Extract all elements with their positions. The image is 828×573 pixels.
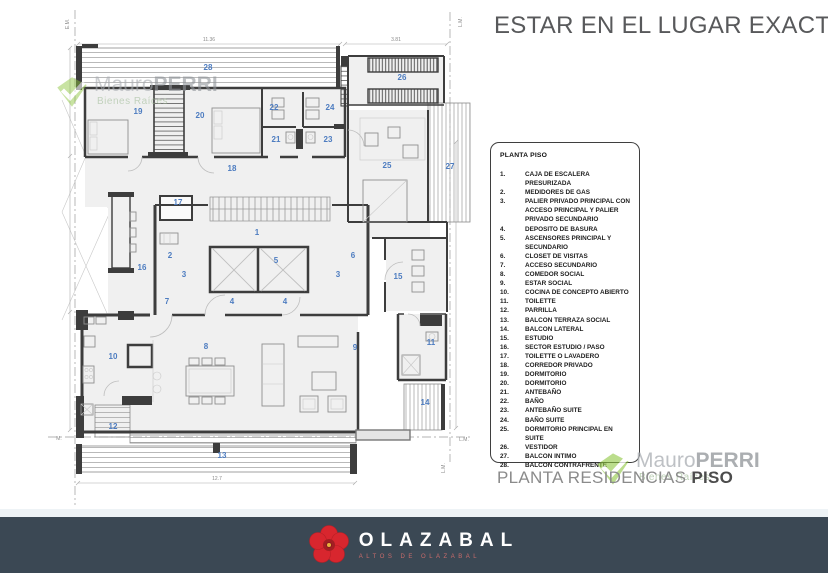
legend-item-number: 23. (500, 406, 525, 415)
legend-item-label: DORMITORIO (525, 379, 633, 388)
room-number-label: 20 (196, 111, 205, 120)
room-number-label: 4 (283, 297, 288, 306)
legend-item-label: MEDIDORES DE GAS (525, 188, 633, 197)
legend-item-label: BALCON LATERAL (525, 325, 633, 334)
closet-band (368, 58, 438, 72)
room-number-label: 25 (383, 161, 392, 170)
legend-item: 1.CAJA DE ESCALERA PRESURIZADA (500, 170, 633, 188)
legend-item-number: 24. (500, 416, 525, 425)
legend-item-label: COCINA DE CONCEPTO ABIERTO (525, 288, 633, 297)
room-number-label: 27 (446, 162, 455, 171)
legend-item: 20.DORMITORIO (500, 379, 633, 388)
boundary-label: E.M. (65, 19, 71, 29)
legend-item-number: 1. (500, 170, 525, 188)
dimension-label: 12.7 (212, 476, 222, 482)
legend-box: PLANTA PISO 1.CAJA DE ESCALERA PRESURIZA… (490, 142, 640, 463)
legend-heading: PLANTA PISO (500, 152, 633, 159)
legend-item: 16.SECTOR ESTUDIO / PASO (500, 343, 633, 352)
legend-item-label: PALIER PRIVADO PRINCIPAL CON ACCESO PRIN… (525, 197, 633, 224)
legend-item-label: PARRILLA (525, 306, 633, 315)
boundary-label: M. (56, 436, 62, 442)
legend-item: 15.ESTUDIO (500, 334, 633, 343)
legend-item-label: ESTAR SOCIAL (525, 279, 633, 288)
legend-item-number: 4. (500, 225, 525, 234)
olazabal-flower-icon (309, 524, 349, 566)
legend-item-number: 14. (500, 325, 525, 334)
legend-item: 22.BAÑO (500, 397, 633, 406)
legend-item-number: 2. (500, 188, 525, 197)
legend-item-label: DORMITORIO PRINCIPAL EN SUITE (525, 425, 633, 443)
legend-item: 19.DORMITORIO (500, 370, 633, 379)
legend-item-number: 25. (500, 425, 525, 443)
room-number-label: 8 (204, 342, 209, 351)
footer-bar: OLAZABAL ALTOS DE OLAZABAL (0, 517, 828, 573)
legend-item-number: 26. (500, 443, 525, 452)
legend-item-label: COMEDOR SOCIAL (525, 270, 633, 279)
legend-item-number: 13. (500, 316, 525, 325)
room-number-label: 2 (168, 251, 173, 260)
staircase-hatch (154, 89, 184, 153)
legend-item-label: VESTIDOR (525, 443, 633, 452)
legend-item-label: ANTEBAÑO (525, 388, 633, 397)
room-number-label: 24 (326, 103, 335, 112)
legend-item: 13.BALCON TERRAZA SOCIAL (500, 316, 633, 325)
legend-item-label: BAÑO (525, 397, 633, 406)
room-number-label: 15 (394, 272, 403, 281)
legend-item-label: ASCENSORES PRINCIPAL Y SECUNDARIO (525, 234, 633, 252)
brand-subtitle: ALTOS DE OLAZABAL (359, 554, 519, 560)
legend-item-number: 6. (500, 252, 525, 261)
legend-item-number: 22. (500, 397, 525, 406)
page-title: ESTAR EN EL LUGAR EXACTO. (494, 12, 824, 40)
room-number-label: 6 (351, 251, 356, 260)
room-number-label: 7 (165, 297, 170, 306)
legend-item-number: 17. (500, 352, 525, 361)
room-number-label: 22 (270, 103, 279, 112)
legend-item-number: 3. (500, 197, 525, 224)
room-number-label: 23 (324, 135, 333, 144)
dimension-label: 3.81 (391, 37, 401, 43)
room-number-label: 26 (398, 73, 407, 82)
legend-item-label: CAJA DE ESCALERA PRESURIZADA (525, 170, 633, 188)
legend-item-number: 19. (500, 370, 525, 379)
room-number-label: 5 (274, 256, 279, 265)
legend-item-label: ACCESO SECUNDARIO (525, 261, 633, 270)
legend-item-label: ANTEBAÑO SUITE (525, 406, 633, 415)
legend-item-label: DORMITORIO (525, 370, 633, 379)
legend-item-label: TOILETTE (525, 297, 633, 306)
dimension-label: 11.36 (203, 37, 215, 43)
legend-item: 5.ASCENSORES PRINCIPAL Y SECUNDARIO (500, 234, 633, 252)
legend-item: 25.DORMITORIO PRINCIPAL EN SUITE (500, 425, 633, 443)
legend-item-label: ESTUDIO (525, 334, 633, 343)
legend-item-label: BALCON INTIMO (525, 452, 633, 461)
room-number-label: 14 (421, 398, 430, 407)
room-number-label: 21 (272, 135, 281, 144)
legend-item: 21.ANTEBAÑO (500, 388, 633, 397)
room-number-label: 3 (182, 270, 187, 279)
room-number-label: 18 (228, 164, 237, 173)
legend-item-number: 11. (500, 297, 525, 306)
legend-item: 4.DEPOSITO DE BASURA (500, 225, 633, 234)
plan-caption: PLANTA RESIDENCIAS PISO (497, 468, 733, 488)
legend-item: 24.BAÑO SUITE (500, 416, 633, 425)
legend-item: 11.TOILETTE (500, 297, 633, 306)
legend-item: 10.COCINA DE CONCEPTO ABIERTO (500, 288, 633, 297)
room-number-label: 1 (255, 228, 260, 237)
legend-item: 3.PALIER PRIVADO PRINCIPAL CON ACCESO PR… (500, 197, 633, 224)
legend-item: 14.BALCON LATERAL (500, 325, 633, 334)
room-number-label: 19 (134, 107, 143, 116)
page-root: 2826192022242123252718171256331615744891… (0, 0, 828, 573)
legend-item: 27.BALCON INTIMO (500, 452, 633, 461)
legend-item: 7.ACCESO SECUNDARIO (500, 261, 633, 270)
legend-item-number: 9. (500, 279, 525, 288)
legend-item-number: 7. (500, 261, 525, 270)
legend-item-number: 20. (500, 379, 525, 388)
legend-item-number: 12. (500, 306, 525, 315)
legend-item: 2.MEDIDORES DE GAS (500, 188, 633, 197)
legend-item-number: 27. (500, 452, 525, 461)
legend-item-label: SECTOR ESTUDIO / PASO (525, 343, 633, 352)
room-number-label: 17 (174, 198, 183, 207)
room-number-label: 10 (109, 352, 118, 361)
floor-plan: 2826192022242123252718171256331615744891… (0, 0, 490, 512)
legend-item: 18.CORREDOR PRIVADO (500, 361, 633, 370)
room-number-label: 16 (138, 263, 147, 272)
legend-item-number: 5. (500, 234, 525, 252)
legend-item-label: BAÑO SUITE (525, 416, 633, 425)
room-number-label: 28 (204, 63, 213, 72)
legend-item: 12.PARRILLA (500, 306, 633, 315)
legend-item: 9.ESTAR SOCIAL (500, 279, 633, 288)
legend-item: 26.VESTIDOR (500, 443, 633, 452)
legend-item: 6.CLOSET DE VISITAS (500, 252, 633, 261)
room-number-label: 12 (109, 422, 118, 431)
room-number-label: 9 (353, 343, 358, 352)
room-number-label: 4 (230, 297, 235, 306)
room-number-label: 13 (218, 451, 227, 460)
balcony-14-hatch (404, 384, 442, 430)
legend-item-label: CLOSET DE VISITAS (525, 252, 633, 261)
room-number-label: 3 (336, 270, 341, 279)
legend-item: 8.COMEDOR SOCIAL (500, 270, 633, 279)
legend-item-label: TOILETTE O LAVADERO (525, 352, 633, 361)
boundary-label: L.M. (459, 437, 469, 443)
legend-item-number: 21. (500, 388, 525, 397)
closet-band (368, 89, 438, 103)
legend-item-label: BALCON TERRAZA SOCIAL (525, 316, 633, 325)
legend-item-number: 8. (500, 270, 525, 279)
legend-item-number: 15. (500, 334, 525, 343)
legend-item: 23.ANTEBAÑO SUITE (500, 406, 633, 415)
legend-item: 17.TOILETTE O LAVADERO (500, 352, 633, 361)
legend-item-label: CORREDOR PRIVADO (525, 361, 633, 370)
room-number-label: 11 (427, 338, 436, 347)
boundary-label: L.M. (458, 17, 464, 27)
legend-item-number: 18. (500, 361, 525, 370)
boundary-label: L.M. (441, 463, 447, 473)
legend-item-label: DEPOSITO DE BASURA (525, 225, 633, 234)
legend-item-number: 10. (500, 288, 525, 297)
legend-item-number: 16. (500, 343, 525, 352)
legend-list: 1.CAJA DE ESCALERA PRESURIZADA2.MEDIDORE… (500, 170, 633, 470)
brand-name: OLAZABAL (359, 531, 519, 550)
